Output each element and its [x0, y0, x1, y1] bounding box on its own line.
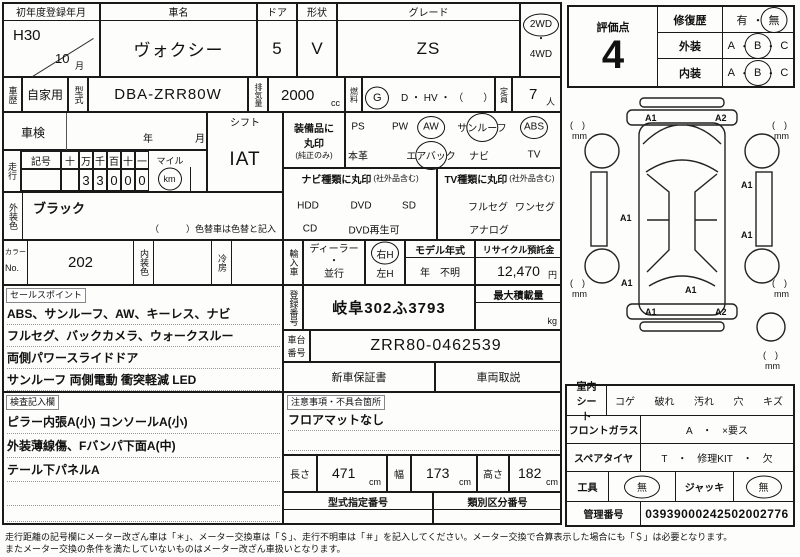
- nav-type-sublabel: (社外品含む): [373, 173, 418, 184]
- classification-label: 類別区分番号: [434, 493, 561, 510]
- mm-top-left: mm: [572, 131, 587, 141]
- inspection-expiry-cell: 車検 年 月: [2, 112, 207, 150]
- grade-value: ZS: [338, 21, 519, 76]
- model-year-label: モデル年式: [406, 241, 474, 258]
- cabin-line-left: [647, 174, 669, 272]
- interior-color-value: [154, 241, 211, 284]
- right-rocker-panel: [756, 172, 772, 246]
- spare-tire-label: スペアタイヤ: [567, 444, 640, 472]
- score-box: 評価点 4 修復歴 有 ・ 無 外装 A ・ B ・ C 内装 A ・ B ・ …: [567, 5, 795, 88]
- displacement-value: 2000: [281, 87, 314, 104]
- classification-value: [434, 510, 561, 524]
- max-load-label: 最大積載量: [476, 286, 561, 303]
- capacity-cell: 7 人: [512, 77, 562, 112]
- sales-line-3: 両側パワースライドドア: [7, 349, 280, 369]
- interior-sheet-label-cell: 室内シート: [567, 386, 607, 416]
- max-load-unit: kg: [547, 316, 557, 326]
- shift-label: シフト: [208, 113, 282, 129]
- capacity-label: 定員: [495, 77, 512, 112]
- spare-tire: [757, 313, 785, 341]
- dot: ・: [739, 38, 750, 54]
- digit-header-10: 十: [121, 151, 135, 169]
- displacement-cell: 2000 cc: [268, 77, 345, 112]
- color-label: カラー: [5, 247, 26, 257]
- max-load-cell: 最大積載量 kg: [475, 285, 562, 330]
- vehicle-name-cell: 車名 ヴォクシー: [100, 2, 257, 77]
- jack-value: 無: [759, 479, 769, 494]
- windshield-arc: [646, 160, 718, 172]
- reg-year: H30: [13, 27, 41, 44]
- mark-right-upper: A1: [741, 180, 753, 190]
- sales-points-box: セールスポイント ABS、サンルーフ、AW、キーレス、ナビ フルセグ、バックカメ…: [2, 285, 283, 392]
- vehicle-name-label: 車名: [101, 3, 256, 21]
- recycle-cell: リサイクル預託金 12,470 円: [475, 240, 562, 285]
- reg-month: 10: [55, 51, 69, 66]
- model-year-value: 不明: [440, 264, 460, 279]
- grade-a: A: [728, 40, 735, 52]
- jack-value-cell: 無: [733, 472, 793, 502]
- exterior-color-value: ブラック: [33, 198, 85, 217]
- length-unit: cm: [369, 477, 381, 487]
- mark-left-mid: A1: [620, 213, 632, 223]
- type-designation-cell: 型式指定番号: [283, 492, 433, 525]
- height-unit: cm: [546, 477, 558, 487]
- vehicle-name-value: ヴォクシー: [101, 21, 256, 76]
- door-cell: ドア 5: [257, 2, 297, 77]
- recycle-label: リサイクル預託金: [476, 241, 561, 258]
- mileage-symbol-header: 記号: [21, 151, 61, 169]
- repair-no: 無: [769, 12, 780, 28]
- windshield-label: フロントガラス: [567, 416, 640, 444]
- fuel-gasoline: G: [373, 92, 382, 104]
- auction-sheet: 初年度登録年月 H30 10 月 車名 ヴォクシー ドア 5 形状 V グレード…: [0, 0, 800, 557]
- height-cell: 182 cm: [509, 455, 562, 492]
- equip-aw: AW: [423, 122, 439, 133]
- fuel-options: D ・ HV ・ （ ）: [401, 89, 493, 104]
- tv-type-sublabel: (社外品含む): [509, 173, 554, 184]
- fuel-label: 燃料: [345, 77, 362, 112]
- equipment-grid: PS PW AW サンルーフ ABS 本革 エアバック ナビ TV: [345, 112, 562, 168]
- footer-notes: 走行距離の記号欄にメーター改ざん車は「＊」、メーター交換車は「＄」、走行不明車は…: [5, 531, 797, 555]
- grade-a: A: [728, 67, 735, 79]
- no-label: No.: [5, 263, 19, 273]
- width-label: 幅: [387, 455, 411, 492]
- inspect-line-empty-2: [7, 507, 280, 522]
- management-number-value: 03939000242502002776: [640, 502, 793, 525]
- mark-right-lower: A1: [741, 230, 753, 240]
- door-value: 5: [258, 21, 296, 76]
- model-code-value: DBA-ZRR80W: [88, 77, 248, 112]
- hood-arc-right: [687, 125, 721, 144]
- color-number-row: カラー No. 202 内装色 冷房: [2, 240, 283, 285]
- mark-rear-center: A1: [685, 285, 697, 295]
- grade-cell: グレード ZS: [337, 2, 520, 77]
- equip-pw: PW: [392, 122, 408, 133]
- drive-dot: ・: [536, 32, 546, 47]
- sheet-scratch: キズ: [763, 393, 783, 408]
- height-value: 182: [518, 465, 541, 481]
- mileage-symbol-value: [21, 169, 61, 191]
- jack-label: ジャッキ: [675, 472, 733, 502]
- nav-cd: CD: [303, 224, 317, 235]
- height-label: 高さ: [477, 455, 509, 492]
- nav-sd: SD: [402, 201, 416, 212]
- dot: ・: [753, 12, 764, 28]
- history-value: 自家用: [22, 77, 68, 112]
- grade-c: C: [780, 40, 788, 52]
- sheet-hole: 穴: [734, 393, 744, 408]
- capacity-unit: 人: [546, 95, 555, 108]
- mark-front-right: A2: [715, 113, 727, 123]
- exterior-color-cell: 外装色 ブラック （ ）色替車は色替と記入: [2, 192, 283, 240]
- shape-label: 形状: [298, 3, 336, 21]
- type-designation-value: [284, 510, 432, 524]
- tools-value: 無: [637, 479, 647, 494]
- car-body-outline: [639, 123, 725, 315]
- width-unit: cm: [459, 477, 471, 487]
- digit-header-100k: 十: [61, 151, 79, 169]
- paren-bottom-right: ( ): [772, 278, 787, 288]
- model-year-char: 年: [420, 264, 430, 279]
- drive-2wd: 2WD: [530, 17, 552, 32]
- mileage-cell: 走行 記号 十 万 千 百 十 一 マイル 3 3 0 0 0 km: [2, 150, 207, 192]
- registration-number-value: 岐阜302ふ3793: [303, 285, 475, 330]
- equipment-sublabel: (純正のみ): [295, 150, 332, 161]
- digit-header-1: 一: [135, 151, 149, 169]
- nav-hdd: HDD: [297, 201, 319, 212]
- tools-label: 工具: [567, 472, 608, 502]
- model-year-value-row: 年 不明: [406, 258, 474, 284]
- sales-line-1: ABS、サンルーフ、AW、キーレス、ナビ: [7, 305, 280, 325]
- cabin-line-right: [695, 174, 717, 272]
- mark-front-left: A1: [645, 113, 657, 123]
- expiry-year-label: 年: [143, 130, 153, 145]
- import-dealer-cell: ディーラー ・ 並行: [303, 240, 365, 285]
- registration-number-label: 登録番号: [283, 285, 303, 330]
- inspect-line-3: テール下パネルA: [7, 461, 280, 482]
- dot: ・: [765, 38, 776, 54]
- nav-type-header: ナビ種類に丸印 (社外品含む): [284, 169, 436, 187]
- mm-spare: mm: [765, 361, 780, 371]
- nav-dvd: DVD: [350, 201, 371, 212]
- first-registration-value: H30 10 月: [3, 21, 99, 76]
- mark-rear-strip-right: A2: [715, 307, 727, 317]
- manual-cell: 車両取説: [435, 362, 562, 392]
- mark-rear-left: A1: [621, 278, 633, 288]
- paren-top-left: ( ): [570, 120, 585, 130]
- digit-10k: 3: [79, 169, 93, 191]
- tv-type-header: TV種類に丸印 (社外品含む): [438, 169, 561, 187]
- exterior-grade-value: A ・ B ・ C: [722, 33, 793, 59]
- footer-line-1: 走行距離の記号欄にメーター改ざん車は「＊」、メーター交換車は「＄」、走行不明車は…: [5, 531, 797, 543]
- model-year-cell: モデル年式 年 不明: [405, 240, 475, 285]
- type-designation-label: 型式指定番号: [284, 493, 432, 510]
- rear-window-arc: [649, 276, 715, 286]
- rear-strip: [640, 322, 724, 331]
- repair-history-label: 修復歴: [658, 7, 722, 33]
- chassis-value: ZRR80-0462539: [310, 330, 562, 362]
- divider: [66, 113, 67, 151]
- digit-1k: 3: [93, 169, 107, 191]
- footer-line-2: またメーター交換の条件を満たしていないものはメーター改ざん車扱いとなります。: [5, 543, 797, 555]
- width-cell: 173 cm: [411, 455, 477, 492]
- score-cell: 評価点 4: [569, 7, 658, 86]
- import-label: 輸入車: [283, 240, 303, 285]
- inspector-notes-label: 検査記入欄: [6, 395, 59, 410]
- shape-cell: 形状 V: [297, 2, 337, 77]
- nav-type-cell: ナビ種類に丸印 (社外品含む) HDD DVD SD CD DVD再生可: [283, 168, 437, 240]
- exterior-grade-label: 外装: [658, 33, 722, 59]
- nav-dvd-play: DVD再生可: [348, 222, 399, 237]
- equip-sunroof: サンルーフ: [457, 120, 506, 135]
- mm-bottom-right: mm: [774, 289, 789, 299]
- import-dealer: ディーラー: [309, 244, 358, 257]
- tv-oneseg: ワンセグ: [515, 199, 555, 214]
- equip-tv: TV: [528, 150, 541, 161]
- model-code-label: 型式: [68, 77, 88, 112]
- import-parallel: 並行: [324, 269, 344, 282]
- handle-left: 左H: [376, 265, 393, 280]
- history-label: 車歴: [2, 77, 22, 112]
- color-no-label-cell: カラー No.: [3, 241, 28, 284]
- color-no-value: 202: [28, 241, 133, 284]
- inspect-line-1: ピラー内張A(小) コンソールA(小): [7, 413, 280, 434]
- sheet-tear: 破れ: [655, 393, 675, 408]
- first-registration-cell: 初年度登録年月 H30 10 月: [2, 2, 100, 77]
- handle-right: 右H: [376, 246, 393, 261]
- equip-leather: 本革: [348, 148, 368, 163]
- displacement-unit: cc: [331, 98, 340, 108]
- repair-history-value: 有 ・ 無: [722, 7, 793, 33]
- grade-c: C: [780, 67, 788, 79]
- interior-sheet-items: コゲ 破れ 汚れ 穴 キズ: [607, 386, 793, 416]
- mm-top-right: mm: [774, 131, 789, 141]
- grade-label: グレード: [338, 3, 519, 21]
- dot: ・: [765, 65, 776, 81]
- capacity-value: 7: [529, 86, 537, 103]
- inspector-notes-box: 検査記入欄 ピラー内張A(小) コンソールA(小) 外装薄線傷、Fバンパ下面A(…: [2, 392, 283, 525]
- nav-type-label: ナビ種類に丸印: [301, 171, 371, 186]
- mile-label: マイル: [149, 153, 191, 167]
- digit-100: 0: [107, 169, 121, 191]
- length-value: 471: [332, 465, 355, 481]
- import-dot: ・: [329, 256, 339, 269]
- hood-arc-left: [643, 125, 677, 144]
- digit-100k: [61, 169, 79, 191]
- paren-top-right: ( ): [772, 120, 787, 130]
- digit-10: 0: [121, 169, 135, 191]
- drive-4wd: 4WD: [530, 47, 552, 62]
- sheet-burn: コゲ: [615, 393, 635, 408]
- interior-color-label: 内装色: [133, 241, 154, 284]
- paren-spare: ( ): [763, 350, 778, 360]
- chassis-label-cell: 車台番号: [283, 330, 310, 362]
- recycle-unit: 円: [548, 268, 557, 281]
- car-damage-diagram: A1 A2 A1 A1 A1 A1 A1 A1 A2 ( ) mm ( ) mm…: [565, 90, 798, 386]
- inspect-line-empty-1: [7, 485, 280, 506]
- left-rocker-panel: [591, 172, 607, 246]
- paren-bottom-left: ( ): [570, 278, 585, 288]
- tv-type-label: TV種類に丸印: [444, 171, 507, 186]
- color-change-note: （ ）色替車は色替と記入: [150, 222, 276, 235]
- repair-yes: 有: [737, 12, 748, 28]
- mark-rear-strip-left: A1: [645, 307, 657, 317]
- classification-cell: 類別区分番号: [433, 492, 562, 525]
- roof-strip: [640, 98, 724, 107]
- mileage-label: 走行: [3, 151, 21, 191]
- first-registration-label: 初年度登録年月: [3, 3, 99, 21]
- windshield-value: A ・ ×要ス: [640, 416, 793, 444]
- management-number-label: 管理番号: [567, 502, 640, 525]
- spare-tire-value: T ・ 修理KIT ・ 欠: [640, 444, 793, 472]
- shape-value: V: [298, 21, 336, 76]
- grade-b-circled: B: [754, 67, 761, 79]
- width-value: 173: [426, 465, 449, 481]
- grade-b-circled: B: [754, 40, 761, 52]
- sales-points-label: セールスポイント: [6, 288, 86, 303]
- door-label: ドア: [258, 3, 296, 21]
- equip-airbag: エアバック: [406, 148, 456, 163]
- score-value: 4: [602, 35, 624, 75]
- tools-value-cell: 無: [608, 472, 675, 502]
- km-unit-cell: km: [149, 167, 191, 191]
- notes-box: 注意事項・不具合箇所 フロアマットなし: [283, 392, 562, 455]
- equip-abs: ABS: [524, 122, 544, 133]
- equip-navi: ナビ: [469, 148, 489, 163]
- sheet-stain: 汚れ: [694, 393, 714, 408]
- dot: ・: [739, 65, 750, 81]
- length-label: 長さ: [283, 455, 317, 492]
- digit-header-10k: 万: [79, 151, 93, 169]
- inspection-expiry-label: 車検: [21, 124, 45, 141]
- km-label: km: [164, 174, 176, 184]
- warranty-cell: 新車保証書: [283, 362, 435, 392]
- expiry-month-label: 月: [195, 130, 205, 145]
- reg-month-suffix: 月: [75, 59, 84, 72]
- interior-grade-label: 内装: [658, 59, 722, 86]
- sales-line-4: サンルーフ 両側電動 衝突軽減 LED: [7, 371, 280, 391]
- interior-grade-value: A ・ B ・ C: [722, 59, 793, 86]
- digit-1: 0: [135, 169, 149, 191]
- exterior-color-label: 外装色: [3, 193, 23, 239]
- tv-type-cell: TV種類に丸印 (社外品含む) フルセグ ワンセグ アナログ: [437, 168, 562, 240]
- mm-bottom-left: mm: [572, 289, 587, 299]
- digit-header-1k: 千: [93, 151, 107, 169]
- equip-ps: PS: [351, 122, 364, 133]
- tv-fullseg: フルセグ: [468, 199, 508, 214]
- sales-line-2: フルセグ、バックカメラ、ウォークスルー: [7, 327, 280, 347]
- shift-cell: シフト IAT: [207, 112, 283, 192]
- notes-value: フロアマットなし: [288, 411, 559, 431]
- inspect-line-2: 外装薄線傷、Fバンパ下面A(中): [7, 437, 280, 458]
- fuel-cell: G D ・ HV ・ （ ）: [362, 77, 495, 112]
- tv-analog: アナログ: [469, 222, 509, 237]
- length-cell: 471 cm: [317, 455, 387, 492]
- notes-empty-line: [288, 433, 559, 451]
- digit-header-100: 百: [107, 151, 121, 169]
- handle-cell: 右H 左H: [365, 240, 405, 285]
- displacement-label: 排気量: [248, 77, 268, 112]
- chassis-label: 車台番号: [287, 333, 307, 359]
- condition-table: 室内シート コゲ 破れ 汚れ 穴 キズ フロントガラス A ・ ×要ス スペアタ…: [565, 384, 795, 527]
- ac-value: [232, 241, 284, 284]
- notes-label: 注意事項・不具合箇所: [287, 395, 385, 410]
- equipment-label-cell: 装備品に丸印 (純正のみ): [283, 112, 345, 168]
- rear-left-wheel: [585, 249, 619, 283]
- equipment-label: 装備品に丸印: [291, 120, 337, 150]
- drive-type-cell: 2WD ・ 4WD: [520, 2, 562, 77]
- ac-label: 冷房: [211, 241, 232, 284]
- front-left-wheel: [585, 134, 619, 168]
- shift-value: IAT: [208, 129, 282, 191]
